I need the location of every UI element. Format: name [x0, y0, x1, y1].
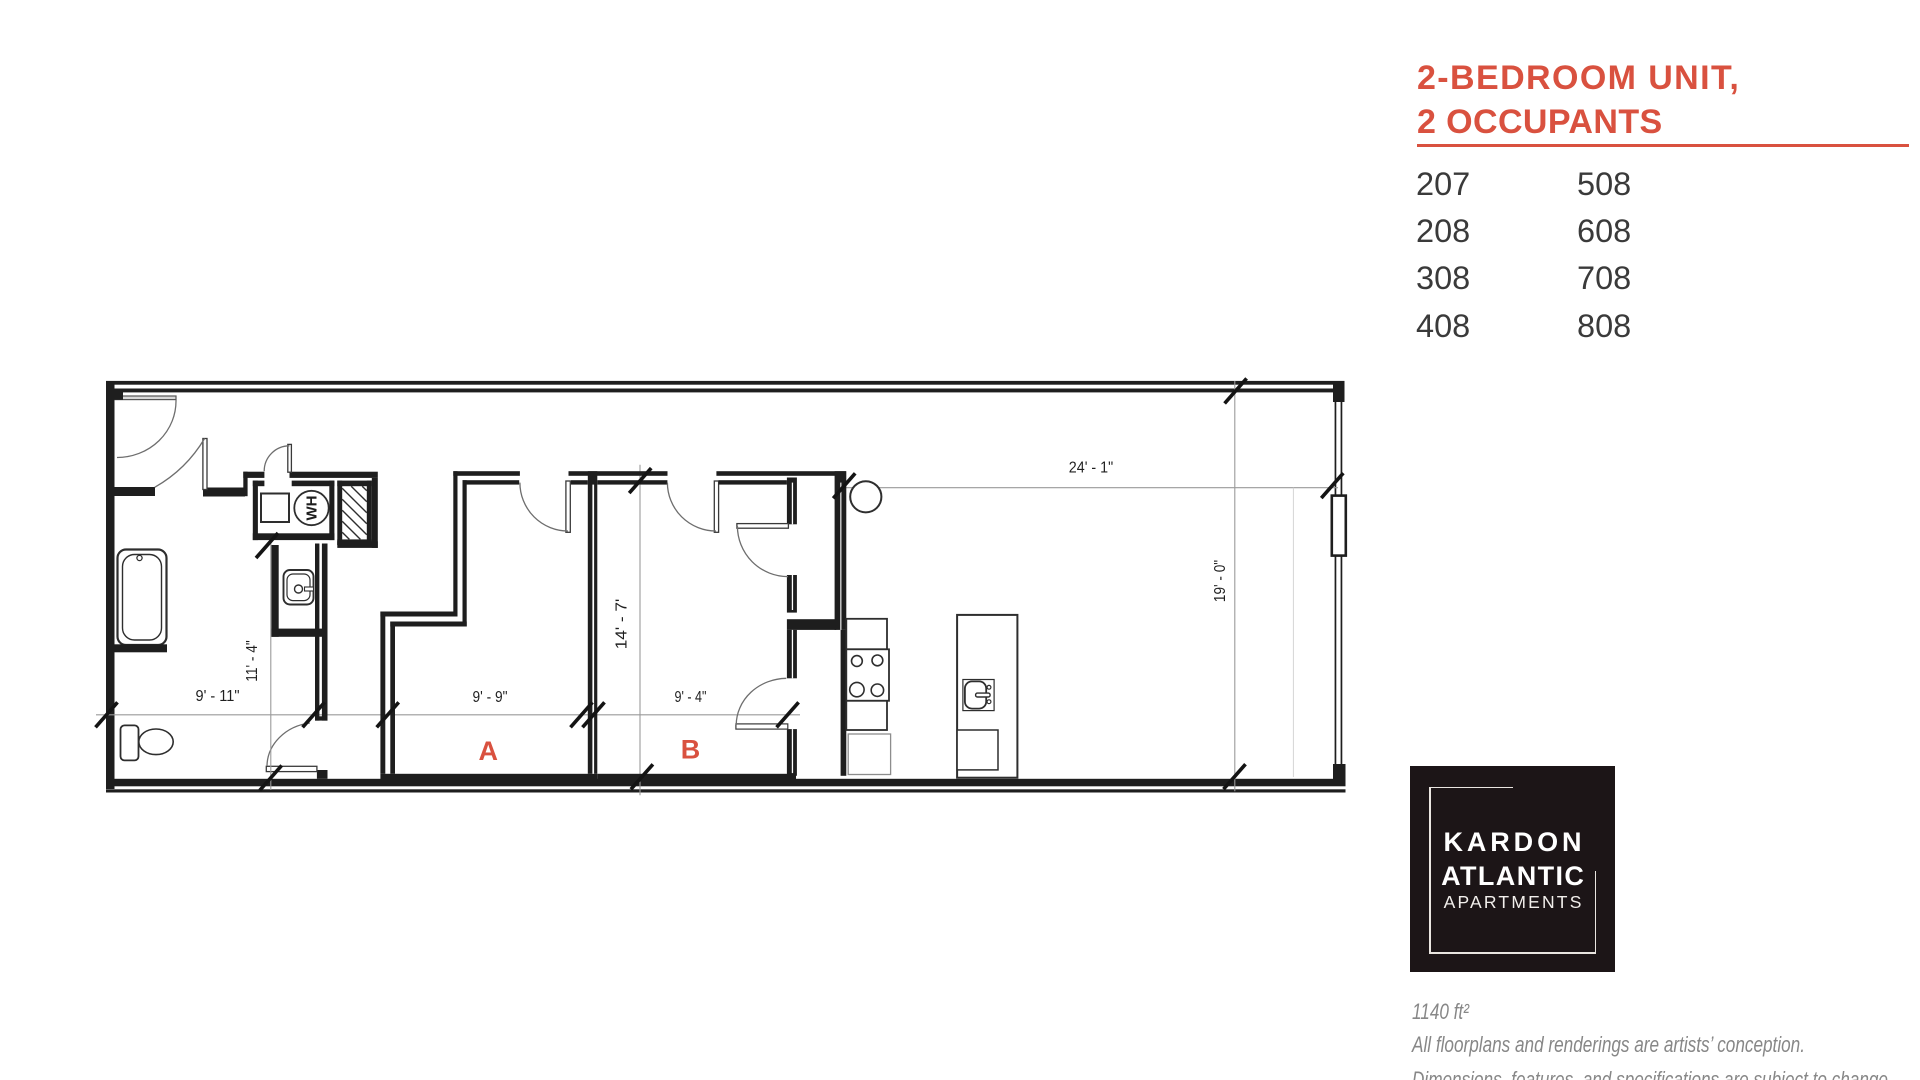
svg-text:24' - 1": 24' - 1" — [1069, 460, 1113, 477]
svg-text:14' - 7': 14' - 7' — [614, 599, 631, 650]
svg-text:9' - 4": 9' - 4" — [675, 689, 707, 706]
svg-text:9' - 11": 9' - 11" — [196, 688, 240, 705]
svg-text:19' - 0": 19' - 0" — [1212, 560, 1229, 602]
svg-text:11' - 4": 11' - 4" — [244, 640, 261, 682]
svg-text:9' - 9": 9' - 9" — [473, 689, 508, 706]
svg-text:B: B — [681, 734, 701, 764]
svg-text:WH: WH — [304, 496, 321, 521]
svg-text:A: A — [479, 736, 499, 766]
